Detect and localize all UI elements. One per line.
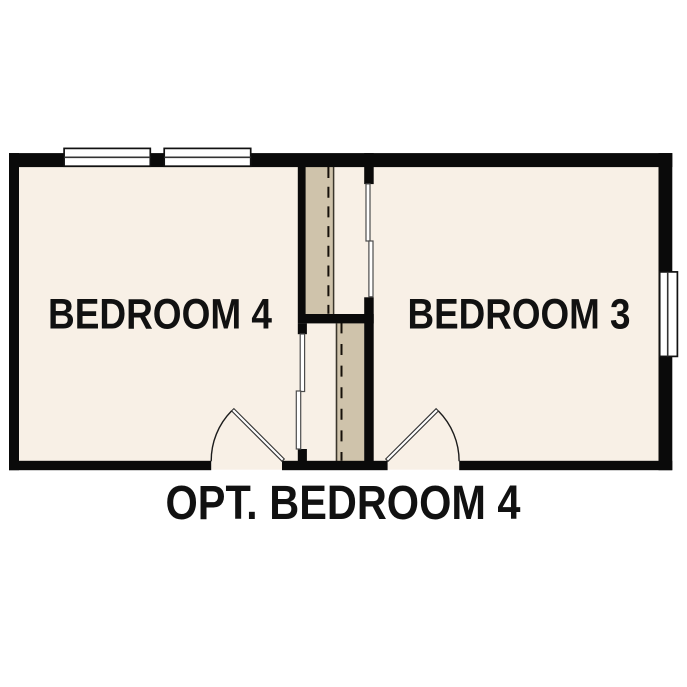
svg-text:BEDROOM 4: BEDROOM 4 bbox=[48, 291, 272, 339]
svg-text:OPT. BEDROOM 4: OPT. BEDROOM 4 bbox=[166, 477, 521, 530]
svg-text:BEDROOM 3: BEDROOM 3 bbox=[408, 291, 631, 339]
